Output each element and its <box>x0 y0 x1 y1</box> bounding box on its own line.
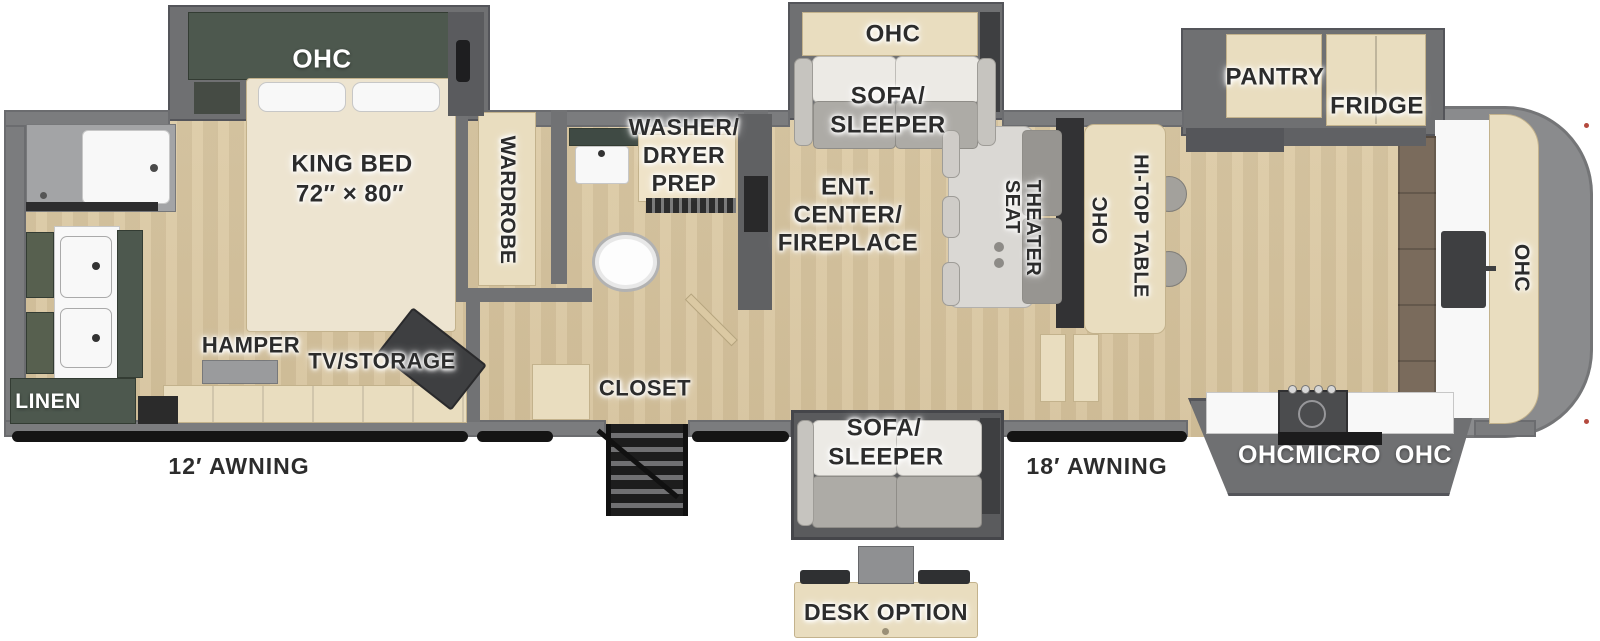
rear-tv-mount <box>1486 266 1496 271</box>
kitchen-micro-label: MICRO <box>1295 442 1381 468</box>
rear-ohc-label: OHC <box>1510 244 1532 292</box>
bedroom-ohc-label: OHC <box>292 45 351 72</box>
stove-knob-3 <box>1314 385 1323 394</box>
fireplace-insert <box>744 176 768 232</box>
sofa-top-arm-right <box>977 58 996 146</box>
shower-head <box>40 192 47 199</box>
sofa-bottom-label-line1: SOFA/ <box>847 415 922 440</box>
washer-dryer-label-line2: DRYER <box>643 143 725 167</box>
washer-dryer-label-line1: WASHER/ <box>629 115 740 139</box>
kitchen-counter-top-run <box>1186 128 1284 152</box>
shower-drain <box>150 164 158 172</box>
awning-bar-left-2 <box>477 431 553 442</box>
medicine-cabinet-top <box>26 232 54 298</box>
awning-bar-left <box>12 431 468 442</box>
bath-corner-cabinet <box>138 396 178 424</box>
sofa-bottom-seat-left <box>812 476 898 528</box>
ent-center-label-line2: CENTER/ <box>794 202 903 227</box>
stove-knob-4 <box>1327 385 1336 394</box>
closet-bench <box>532 364 590 420</box>
kitchen-ohc-right-label: OHC <box>1395 442 1452 468</box>
bedroom-nightstand <box>194 82 240 114</box>
rv-floorplan-canvas: OHC KING BED 72″ × 80″ WARDROBE HAMPER T… <box>0 0 1600 641</box>
awning-bar-right-1 <box>692 431 789 442</box>
toilet <box>592 232 660 292</box>
hamper-box <box>202 360 278 384</box>
desk-item-right <box>918 570 970 584</box>
tv-storage-cabinet <box>163 385 467 423</box>
hitop-ohc-label: OHC <box>1090 196 1112 244</box>
marker-light-bottom <box>1584 419 1589 424</box>
rear-tv <box>1441 231 1486 308</box>
sofa-bottom-seat-right <box>896 476 982 528</box>
sofa-top-ohc-label: OHC <box>866 21 921 46</box>
sofa-bottom-arm-left <box>797 420 814 526</box>
fridge-label: FRIDGE <box>1330 93 1424 118</box>
sofa-bottom-end-panel <box>980 418 1000 514</box>
awning-bar-right-2 <box>1007 431 1187 442</box>
awning-right-label: 18′ AWNING <box>1026 454 1167 478</box>
desk-item-left <box>800 570 850 584</box>
faucet-top <box>92 262 100 270</box>
theater-armrest-mid <box>942 196 960 238</box>
kitchen-tall-cabinets <box>1398 136 1436 412</box>
linen-label: LINEN <box>15 391 81 413</box>
theater-seat-label-line1: THEATER <box>1022 180 1043 276</box>
bed-pillow-left <box>258 82 346 112</box>
theater-armrest-bottom <box>942 262 960 306</box>
sofa-top-label-line1: SOFA/ <box>851 83 926 108</box>
bed-pillow-right <box>352 82 440 112</box>
stove-knob-1 <box>1288 385 1297 394</box>
marker-light-top <box>1584 123 1589 128</box>
hamper-label: HAMPER <box>202 333 300 356</box>
washer-vent-grate <box>646 198 736 213</box>
faucet-bottom <box>92 334 100 342</box>
pantry-label: PANTRY <box>1226 64 1325 89</box>
washer-dryer-label-line3: PREP <box>652 171 717 195</box>
desk-knob <box>882 628 889 635</box>
wall-washerdryer-left <box>551 110 567 284</box>
hitop-table-label: HI-TOP TABLE <box>1130 154 1151 298</box>
washer-sink-faucet <box>598 150 605 157</box>
desk-hutch <box>858 546 914 584</box>
bath-tall-cabinet <box>117 230 143 378</box>
ent-center-label-line1: ENT. <box>821 174 875 199</box>
sofa-top-label-line2: SLEEPER <box>830 112 946 137</box>
theater-seat-label-line2: SEAT <box>1001 180 1022 276</box>
ent-center-label-line3: FIREPLACE <box>778 230 919 255</box>
king-bed-label-line2: 72″ × 80″ <box>296 181 404 206</box>
hitop-table-leg-left <box>1040 334 1066 402</box>
medicine-cabinet-bottom <box>26 312 54 374</box>
hitop-table-leg-right <box>1073 334 1099 402</box>
bedroom-slide-window <box>456 40 470 82</box>
kitchen-ohc-micro-label: OHCMICROOHC <box>1238 442 1452 468</box>
king-bed-label-line1: KING BED <box>291 151 412 176</box>
kitchen-ohc-left-label: OHC <box>1238 442 1295 468</box>
shower-threshold <box>26 202 158 211</box>
stove-burner <box>1298 400 1326 428</box>
sofa-top-arm-left <box>794 58 813 146</box>
counter-under-fridge <box>1284 128 1426 146</box>
desk-option-label: DESK OPTION <box>804 600 968 624</box>
vanity-sink-bottom <box>60 308 112 368</box>
wardrobe-label: WARDROBE <box>496 136 518 265</box>
tv-storage-label: TV/STORAGE <box>308 349 456 372</box>
theater-seat-label: THEATER SEAT <box>1001 180 1043 276</box>
awning-left-label: 12′ AWNING <box>168 454 309 478</box>
sofa-bottom-label-line2: SLEEPER <box>828 444 944 469</box>
vanity-sink-top <box>60 236 112 298</box>
stove-knob-2 <box>1301 385 1310 394</box>
closet-label: CLOSET <box>599 376 691 399</box>
